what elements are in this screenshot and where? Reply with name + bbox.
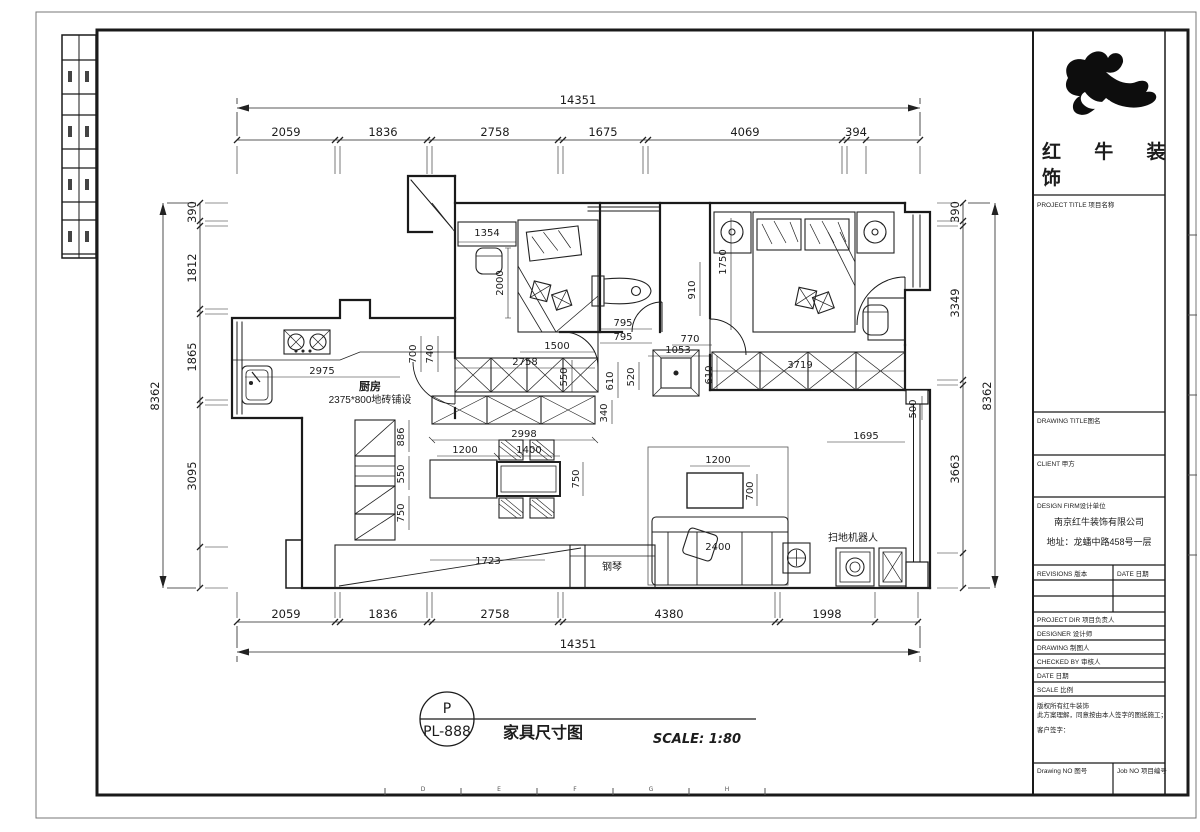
kitchen-sink <box>242 366 272 404</box>
dim-right-overall: 8362 <box>980 381 994 410</box>
redbull-logo-icon <box>1066 51 1156 114</box>
hall-wardrobe-row2 <box>432 396 595 424</box>
kitchen-label: 厨房 <box>359 379 381 393</box>
carpet <box>648 447 788 585</box>
dim-right-seg2: 3663 <box>948 454 962 483</box>
kitchen-counter <box>232 352 455 360</box>
kitchen-tile-note: 2375*800地砖铺设 <box>329 393 412 406</box>
dim-left-seg1: 1812 <box>185 253 199 282</box>
robot-vacuum-label: 扫地机器人 <box>828 531 878 544</box>
dim-1354: 1354 <box>474 228 499 239</box>
dim-left-seg3: 3095 <box>185 461 199 490</box>
drawing-person-label: DRAWING 制图人 <box>1037 643 1090 652</box>
low-cabinet <box>335 545 585 588</box>
grid-letter: D <box>421 786 426 793</box>
grid-letter: F <box>573 786 577 793</box>
dim-610b: 610 <box>704 365 715 384</box>
dim-750a: 750 <box>396 503 407 522</box>
bay-door-arc <box>857 277 905 325</box>
piano-label: 钢琴 <box>602 560 622 573</box>
brand-name-line2: 饰 <box>1042 166 1075 189</box>
nightstand-lamp-right <box>857 212 894 253</box>
dim-2000: 2000 <box>495 270 506 295</box>
dim-top-seg3: 1675 <box>588 125 617 139</box>
robot-dock <box>879 548 906 586</box>
revisions-date-label: DATE 日期 <box>1117 570 1149 578</box>
designer-label: DESIGNER 设计师 <box>1037 629 1093 638</box>
left-edge-strip <box>62 35 96 258</box>
dim-610a: 610 <box>605 371 616 390</box>
side-table <box>783 543 810 573</box>
revisions-label: REVISIONS 版本 <box>1037 569 1088 578</box>
washbasin <box>653 350 699 396</box>
customer-sign-label: 客户签字： <box>1037 725 1070 734</box>
dim-1200b: 1200 <box>705 455 730 466</box>
dim-right-seg1: 3349 <box>948 288 962 317</box>
sheet-canvas: D E F G H 红 牛 装 饰 PROJECT TITLE 项目名称 <box>0 0 1200 832</box>
drawing-sheet: D E F G H 红 牛 装 饰 PROJECT TITLE 项目名称 <box>0 0 1200 832</box>
dim-bottom-seg0: 2059 <box>271 607 300 621</box>
dim-2400: 2400 <box>705 542 730 553</box>
desk <box>868 298 905 340</box>
coffee-table <box>687 473 743 508</box>
job-no-label: Job NO 项目编号 <box>1117 766 1167 775</box>
dim-1723: 1723 <box>475 556 500 567</box>
grid-letter: H <box>725 786 730 793</box>
grid-reference-letters: D E F G H <box>421 786 730 793</box>
dim-bottom-seg3: 4380 <box>654 607 683 621</box>
gas-stove <box>284 330 330 354</box>
bed-throw <box>530 281 551 302</box>
stool <box>476 248 502 274</box>
dim-770: 770 <box>680 334 699 345</box>
dim-520: 520 <box>626 367 637 386</box>
single-bed <box>518 220 598 332</box>
washing-machine <box>836 548 874 586</box>
dim-1053: 1053 <box>665 345 690 356</box>
drawing-scale: SCALE: 1:80 <box>653 732 741 747</box>
kitchen-door-arc <box>413 362 455 404</box>
design-firm-address: 地址：龙蟠中路458号一层 <box>1046 536 1151 547</box>
badge-code: PL-888 <box>423 724 471 740</box>
copyright-line2: 此方案理解，同意按由本人签字的图纸施工； <box>1037 710 1167 719</box>
dim-3719: 3719 <box>787 360 812 371</box>
dim-1400: 1400 <box>516 445 541 456</box>
double-bed <box>753 212 855 332</box>
dim-910: 910 <box>687 280 698 299</box>
floor-plan-walls <box>232 176 930 588</box>
dim-left-seg2: 1865 <box>185 342 199 371</box>
title-block: 红 牛 装 饰 PROJECT TITLE 项目名称 DRAWING TITLE… <box>1033 51 1180 795</box>
dim-top-seg4: 4069 <box>730 125 759 139</box>
drawing-no-label: Drawing NO 图号 <box>1037 767 1088 775</box>
dim-500: 500 <box>908 399 919 418</box>
dim-1695: 1695 <box>853 431 878 442</box>
project-dir-label: PROJECT DIR 项目负责人 <box>1037 615 1115 624</box>
nightstand-lamp-left <box>714 212 751 253</box>
date-label: DATE 日期 <box>1037 672 1069 680</box>
dim-top-seg0: 2059 <box>271 125 300 139</box>
dim-left-overall: 8362 <box>148 381 162 410</box>
bathroom-door-arc <box>632 302 662 332</box>
dim-750b: 750 <box>571 469 582 488</box>
dim-left-seg0: 390 <box>185 201 199 223</box>
dim-886: 886 <box>396 427 407 446</box>
grid-letter: E <box>497 786 501 793</box>
cabinet-column <box>355 420 395 540</box>
footer: P PL-888 家具尺寸图 SCALE: 1:80 <box>420 692 756 747</box>
dim-bottom-overall: 14351 <box>560 637 597 651</box>
design-firm-name: 南京红牛装饰有限公司 <box>1054 516 1144 527</box>
drawing-title: 家具尺寸图 <box>503 723 583 742</box>
dimension-labels: 14351 2059 1836 2758 1675 4069 394 2059 … <box>148 93 994 651</box>
dim-700a: 700 <box>408 344 419 363</box>
dim-700b: 700 <box>745 481 756 500</box>
dim-795a: 795 <box>613 318 632 329</box>
brand-name-line1: 红 牛 装 <box>1042 140 1180 163</box>
dim-1750: 1750 <box>718 249 729 274</box>
desk-chair <box>863 305 888 335</box>
dim-795b: 795 <box>613 332 632 343</box>
project-title-label: PROJECT TITLE 项目名称 <box>1037 200 1115 209</box>
dim-bottom-seg2: 2758 <box>480 607 509 621</box>
dim-340: 340 <box>599 403 610 422</box>
dim-right-seg0: 390 <box>948 201 962 223</box>
dim-top-seg5: 394 <box>845 125 867 139</box>
dim-2998: 2998 <box>511 429 536 440</box>
dim-1500: 1500 <box>544 341 569 352</box>
drawing-title-label: DRAWING TITLE图名 <box>1037 416 1101 425</box>
badge-letter: P <box>443 701 451 717</box>
copyright-line1: 版权所有红牛装饰 <box>1037 701 1090 710</box>
dim-bottom-seg4: 1998 <box>812 607 841 621</box>
dim-top-overall: 14351 <box>560 93 597 107</box>
dim-2758i: 2758 <box>512 357 537 368</box>
dim-bottom-seg1: 1836 <box>368 607 397 621</box>
checked-by-label: CHECKED BY 审核人 <box>1037 657 1101 666</box>
dim-2975: 2975 <box>309 366 334 377</box>
dim-1200a: 1200 <box>452 445 477 456</box>
dim-top-seg1: 1836 <box>368 125 397 139</box>
design-firm-label: DESIGN FIRM设计单位 <box>1037 501 1106 510</box>
master-door-arc <box>710 319 746 355</box>
dim-top-seg2: 2758 <box>480 125 509 139</box>
dim-550a: 550 <box>559 367 570 386</box>
dim-740: 740 <box>425 344 436 363</box>
dim-550b: 550 <box>396 464 407 483</box>
grid-letter: G <box>649 786 654 793</box>
client-label: CLIENT 甲方 <box>1037 459 1075 468</box>
scale-label: SCALE 比例 <box>1037 685 1073 694</box>
